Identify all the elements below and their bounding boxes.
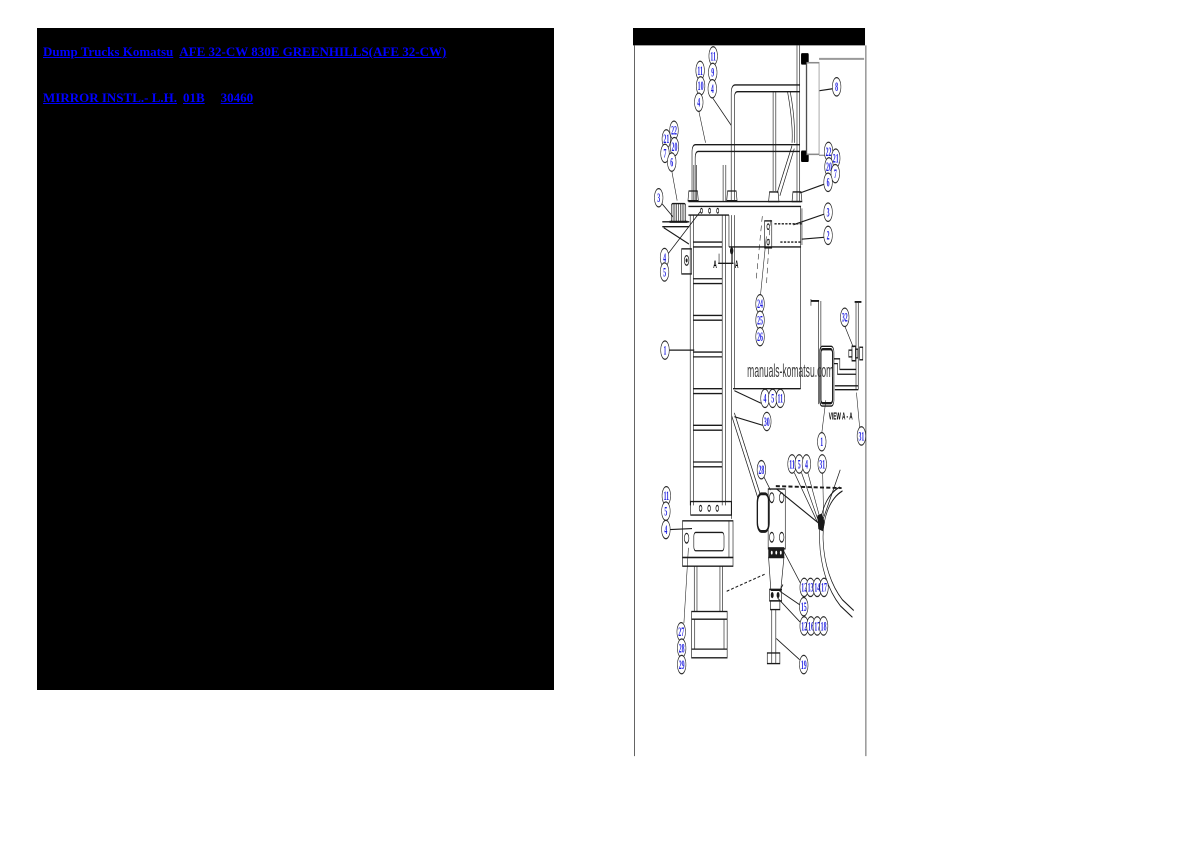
svg-text:29: 29 xyxy=(679,659,685,673)
leader-line xyxy=(712,97,731,125)
leader-line xyxy=(778,598,801,622)
callout-30: 30 xyxy=(763,412,772,430)
leader-line xyxy=(801,237,824,239)
section-title-link[interactable]: MIRROR INSTL.- L.H. xyxy=(43,90,177,105)
svg-text:4: 4 xyxy=(805,458,808,472)
leader-line xyxy=(783,551,800,583)
callout-8: 8 xyxy=(832,78,841,96)
callout-9: 9 xyxy=(708,63,717,81)
leader-line xyxy=(820,89,833,91)
breadcrumb-link[interactable]: Dump Trucks Komatsu xyxy=(43,44,173,59)
svg-text:7: 7 xyxy=(834,168,837,182)
leader-line xyxy=(794,473,817,522)
callout-6: 6 xyxy=(824,173,833,191)
callout-15: 15 xyxy=(799,598,808,616)
callout-32: 32 xyxy=(840,308,849,326)
navigation-panel: Dump Trucks KomatsuAFE 32-CW 830E GREENH… xyxy=(37,28,554,690)
sheet-code-link[interactable]: 01B xyxy=(183,90,205,105)
manual-page: Dump Trucks KomatsuAFE 32-CW 830E GREENH… xyxy=(0,0,1190,842)
mirror-panel xyxy=(801,53,864,162)
callout-4: 4 xyxy=(708,80,717,98)
callout-29: 29 xyxy=(677,655,686,673)
model-link[interactable]: AFE 32-CW 830E GREENHILLS(AFE 32-CW) xyxy=(179,44,446,59)
leader-line xyxy=(845,326,854,347)
svg-text:1: 1 xyxy=(820,436,823,450)
svg-text:11: 11 xyxy=(778,392,784,406)
leader-line xyxy=(734,417,762,426)
callout-24: 24 xyxy=(756,295,765,313)
callout-19: 19 xyxy=(799,655,808,673)
callout-3: 3 xyxy=(654,189,663,207)
leader-line xyxy=(780,591,800,605)
leader-line xyxy=(764,476,771,490)
callout-4: 4 xyxy=(662,520,671,538)
leader-line xyxy=(822,400,826,433)
leader-line xyxy=(793,214,824,225)
parts-diagram: A A manuals-komatsu.com VIEW A - A 11941… xyxy=(633,28,1152,788)
svg-text:4: 4 xyxy=(697,96,700,110)
callout-5: 5 xyxy=(662,502,671,520)
callout-26: 26 xyxy=(756,327,765,345)
leader-line xyxy=(727,574,766,591)
svg-text:19: 19 xyxy=(801,659,807,673)
callout-3: 3 xyxy=(824,203,833,221)
callout-10: 10 xyxy=(696,77,705,95)
leader-line xyxy=(699,111,706,143)
svg-text:24: 24 xyxy=(757,298,763,312)
callout-6: 6 xyxy=(667,153,676,171)
leader-line xyxy=(760,236,766,295)
callout-5: 5 xyxy=(660,263,669,281)
svg-text:22: 22 xyxy=(671,124,677,138)
svg-text:9: 9 xyxy=(711,66,714,80)
callout-18: 18 xyxy=(819,617,828,635)
svg-text:12: 12 xyxy=(801,620,807,634)
view-a-a-label: VIEW A - A xyxy=(829,411,853,423)
svg-text:25: 25 xyxy=(757,314,763,328)
callout-17: 17 xyxy=(820,578,829,596)
callout-2: 2 xyxy=(824,226,833,244)
svg-text:26: 26 xyxy=(757,331,763,345)
watermark: manuals-komatsu.com xyxy=(747,362,833,383)
svg-text:31: 31 xyxy=(858,430,864,444)
callout-5: 5 xyxy=(768,389,777,407)
svg-text:27: 27 xyxy=(678,626,684,640)
page-title: MIRROR INSTL.- L.H.01B30460 xyxy=(43,90,259,106)
callout-4: 4 xyxy=(694,93,703,111)
svg-text:28: 28 xyxy=(758,464,764,478)
callout-22: 22 xyxy=(670,121,679,139)
svg-text:4: 4 xyxy=(764,392,767,406)
svg-text:3: 3 xyxy=(827,206,830,220)
callout-1: 1 xyxy=(817,433,826,451)
svg-text:4: 4 xyxy=(664,524,667,538)
svg-text:5: 5 xyxy=(664,505,667,519)
callout-27: 27 xyxy=(677,623,686,641)
svg-text:15: 15 xyxy=(801,601,807,615)
ladder-platform-drawing xyxy=(662,45,862,663)
svg-text:10: 10 xyxy=(698,80,704,94)
svg-text:3: 3 xyxy=(657,192,660,206)
svg-text:32: 32 xyxy=(842,311,848,325)
section-letter-a-right: A xyxy=(735,259,739,271)
svg-text:1: 1 xyxy=(664,344,667,358)
svg-text:17: 17 xyxy=(821,581,827,595)
callout-1: 1 xyxy=(661,341,670,359)
leader-line xyxy=(801,473,819,523)
svg-text:11: 11 xyxy=(789,458,795,472)
svg-text:18: 18 xyxy=(821,620,827,634)
callout-25: 25 xyxy=(756,311,765,329)
leader-line xyxy=(856,393,859,428)
leader-line xyxy=(684,548,689,623)
callout-11: 11 xyxy=(776,389,785,407)
leader-line xyxy=(756,216,762,282)
svg-text:6: 6 xyxy=(670,156,673,170)
callout-11: 11 xyxy=(709,47,718,65)
svg-text:5: 5 xyxy=(663,266,666,280)
svg-text:11: 11 xyxy=(710,50,716,64)
svg-text:28: 28 xyxy=(679,642,685,656)
leader-line xyxy=(670,529,692,530)
callout-28: 28 xyxy=(677,639,686,657)
leader-line xyxy=(800,184,824,193)
svg-text:2: 2 xyxy=(827,229,830,243)
svg-text:5: 5 xyxy=(771,392,774,406)
svg-text:5: 5 xyxy=(798,458,801,472)
callout-31: 31 xyxy=(818,455,827,473)
callout-4: 4 xyxy=(802,455,811,473)
svg-text:8: 8 xyxy=(835,81,838,95)
svg-text:4: 4 xyxy=(711,83,714,97)
callout-28: 28 xyxy=(757,461,766,479)
leader-line xyxy=(672,171,677,201)
part-number-link[interactable]: 30460 xyxy=(221,90,254,105)
callout-4: 4 xyxy=(761,389,770,407)
svg-text:13: 13 xyxy=(808,581,814,595)
section-letter-a-left: A xyxy=(713,259,717,271)
breadcrumb: Dump Trucks KomatsuAFE 32-CW 830E GREENH… xyxy=(43,44,452,60)
diagram-top-bar xyxy=(633,28,865,45)
svg-text:7: 7 xyxy=(664,147,667,161)
callout-31: 31 xyxy=(857,427,866,445)
svg-text:30: 30 xyxy=(764,416,770,430)
svg-text:6: 6 xyxy=(827,176,830,190)
leader-line xyxy=(734,391,761,404)
svg-text:31: 31 xyxy=(819,458,825,472)
svg-text:14: 14 xyxy=(814,581,820,595)
diagram-svg: A A manuals-komatsu.com VIEW A - A 11941… xyxy=(633,28,1152,788)
